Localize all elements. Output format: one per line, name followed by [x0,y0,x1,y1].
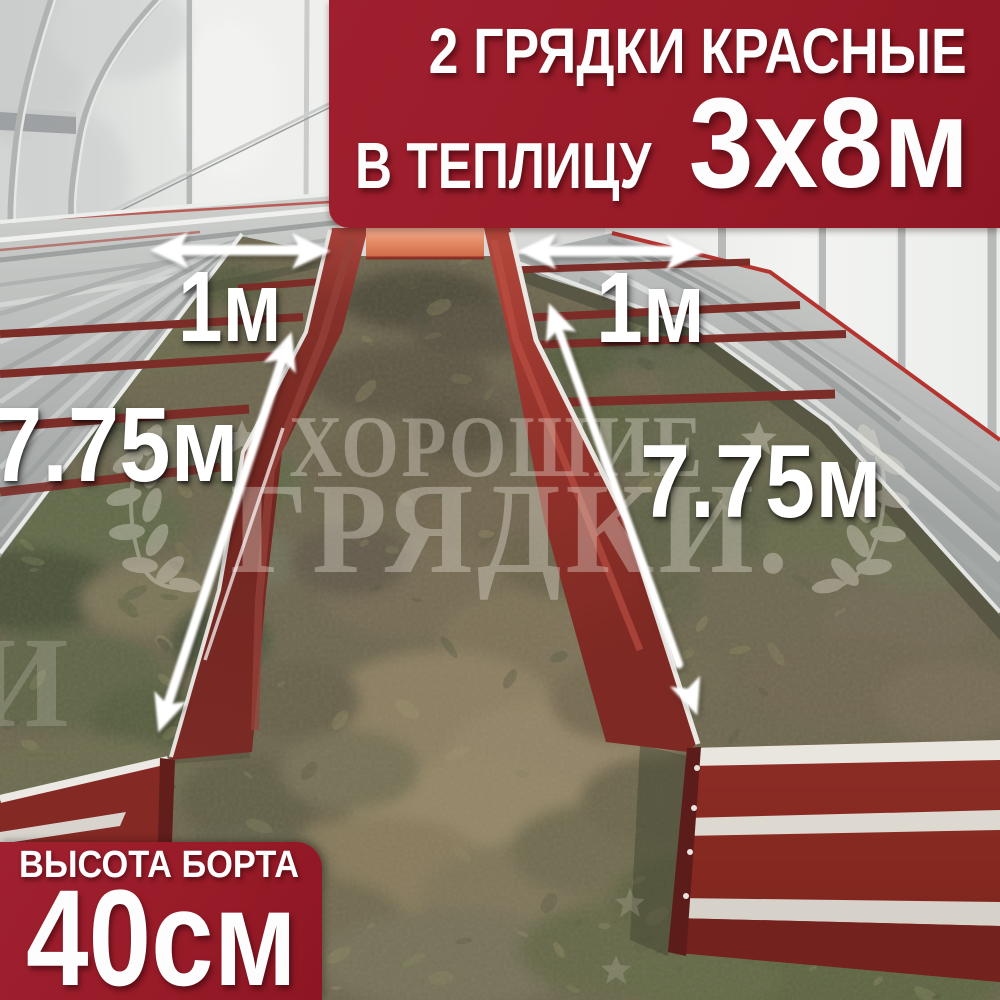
svg-text:КИ: КИ [0,611,72,755]
